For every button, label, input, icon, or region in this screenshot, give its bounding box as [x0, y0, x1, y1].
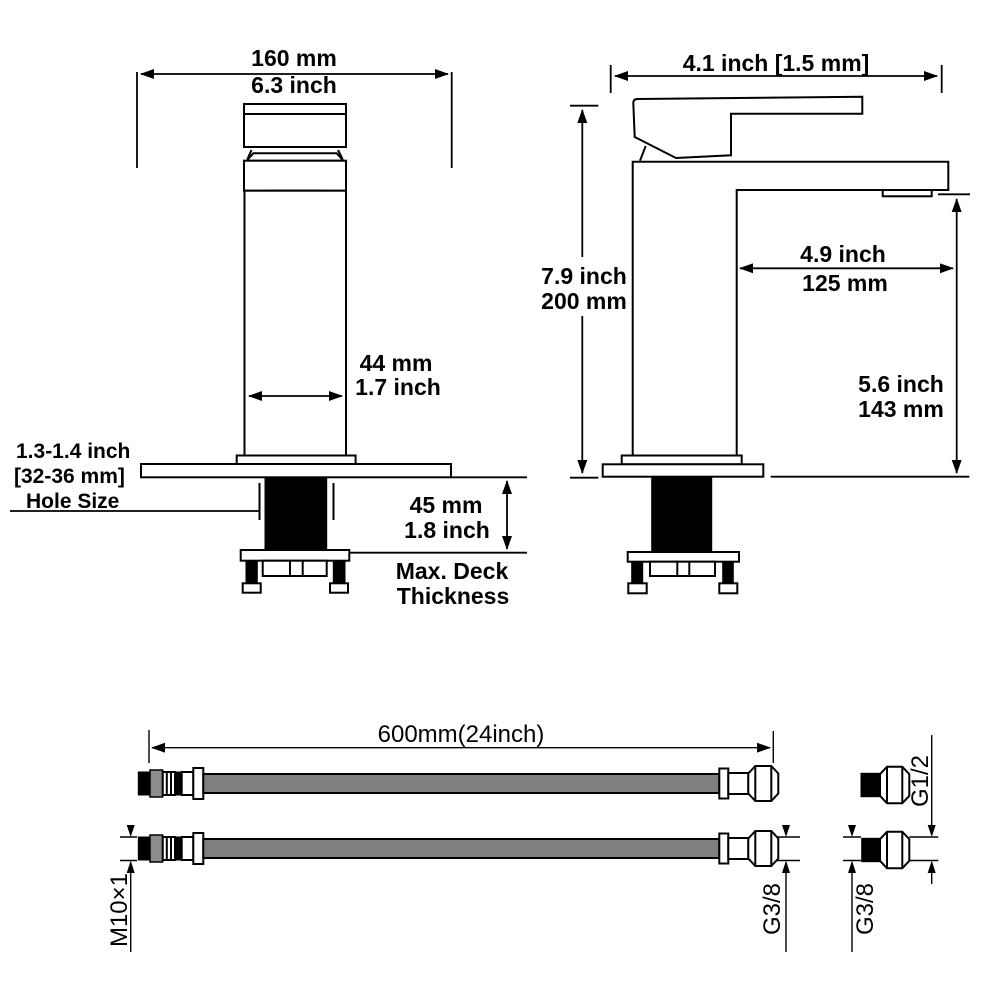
front-threaded-shank [265, 477, 327, 552]
adapter-bottom-nut [880, 832, 909, 869]
adapter-top-nut [880, 767, 909, 804]
hole-size-line1: 1.3-1.4 inch [16, 440, 130, 463]
adapter-large-thread-dimension: G1/2 [907, 735, 938, 884]
faucet-dimension-diagram: 160 mm 6.3 inch [0, 0, 1000, 1000]
front-spout-block [244, 161, 346, 191]
deck-thickness-dimension: 45 mm 1.8 inch Max. Deck Thickness [349, 477, 527, 609]
spout-height-inch-label: 5.6 inch [858, 371, 944, 397]
side-spout-height-dimension: 5.6 inch 143 mm [771, 194, 970, 476]
hose-bottom [138, 831, 778, 866]
front-handle-neck [247, 153, 344, 160]
reach-inch-label: 4.9 inch [800, 241, 886, 267]
hose-bottom-tube [203, 839, 719, 858]
height-inch-label: 7.9 inch [541, 263, 627, 289]
adapter-bottom [862, 832, 910, 869]
hose-end-thread-label: G3/8 [759, 883, 786, 935]
side-view: 4.1 inch [1.5 mm] [541, 50, 970, 593]
side-width-dimension: 4.1 inch [1.5 mm] [611, 50, 942, 93]
hose-bottom-nut [748, 831, 778, 866]
adapter-top [861, 767, 909, 804]
inlet-thread-label: M10×1 [106, 873, 133, 947]
side-handle-lever [633, 97, 862, 158]
deck-inch-label: 1.8 inch [404, 517, 490, 543]
reach-mm-label: 125 mm [802, 270, 888, 296]
hose-length-label: 600mm(24inch) [378, 721, 545, 748]
front-base-plate [141, 464, 451, 477]
deck-mm-label: 45 mm [410, 492, 483, 518]
front-base-flange [237, 456, 356, 465]
side-reach-dimension: 4.9 inch 125 mm [740, 241, 953, 296]
side-base-plate [603, 464, 764, 476]
side-base-flange [622, 456, 742, 465]
adapter-small-thread-label: G3/8 [852, 883, 879, 935]
side-mounting-hardware [628, 552, 739, 593]
hose-top [138, 766, 778, 801]
height-mm-label: 200 mm [541, 288, 627, 314]
side-width-label: 4.1 inch [1.5 mm] [683, 50, 870, 76]
spout-height-mm-label: 143 mm [858, 396, 944, 422]
front-mounting-hardware [241, 550, 350, 593]
side-threaded-shank [652, 477, 712, 552]
front-body [245, 191, 347, 456]
supply-hoses: 600mm(24inch) [106, 721, 938, 952]
hose-top-tube [203, 774, 719, 793]
front-handle [244, 104, 346, 147]
diagram-svg: 160 mm 6.3 inch [0, 0, 1000, 1000]
body-width-inch-label: 1.7 inch [355, 374, 441, 400]
deck-caption-line2: Thickness [397, 583, 510, 609]
body-width-mm-label: 44 mm [360, 350, 433, 376]
inlet-thread-dimension: M10×1 [106, 825, 137, 952]
deck-caption-line1: Max. Deck [396, 558, 509, 584]
side-faucet-drawing [603, 97, 949, 594]
front-width-mm-label: 160 mm [251, 45, 337, 71]
side-height-dimension: 7.9 inch 200 mm [541, 106, 627, 478]
front-view: 160 mm 6.3 inch [10, 45, 527, 609]
front-width-inch-label: 6.3 inch [251, 72, 337, 98]
hole-size-line3: Hole Size [26, 490, 119, 513]
hose-top-nut [748, 766, 778, 801]
hole-size-line2: [32-36 mm] [14, 465, 125, 488]
hose-length-dimension: 600mm(24inch) [149, 721, 773, 763]
side-aerator [883, 190, 932, 196]
adapter-large-thread-label: G1/2 [907, 755, 934, 807]
